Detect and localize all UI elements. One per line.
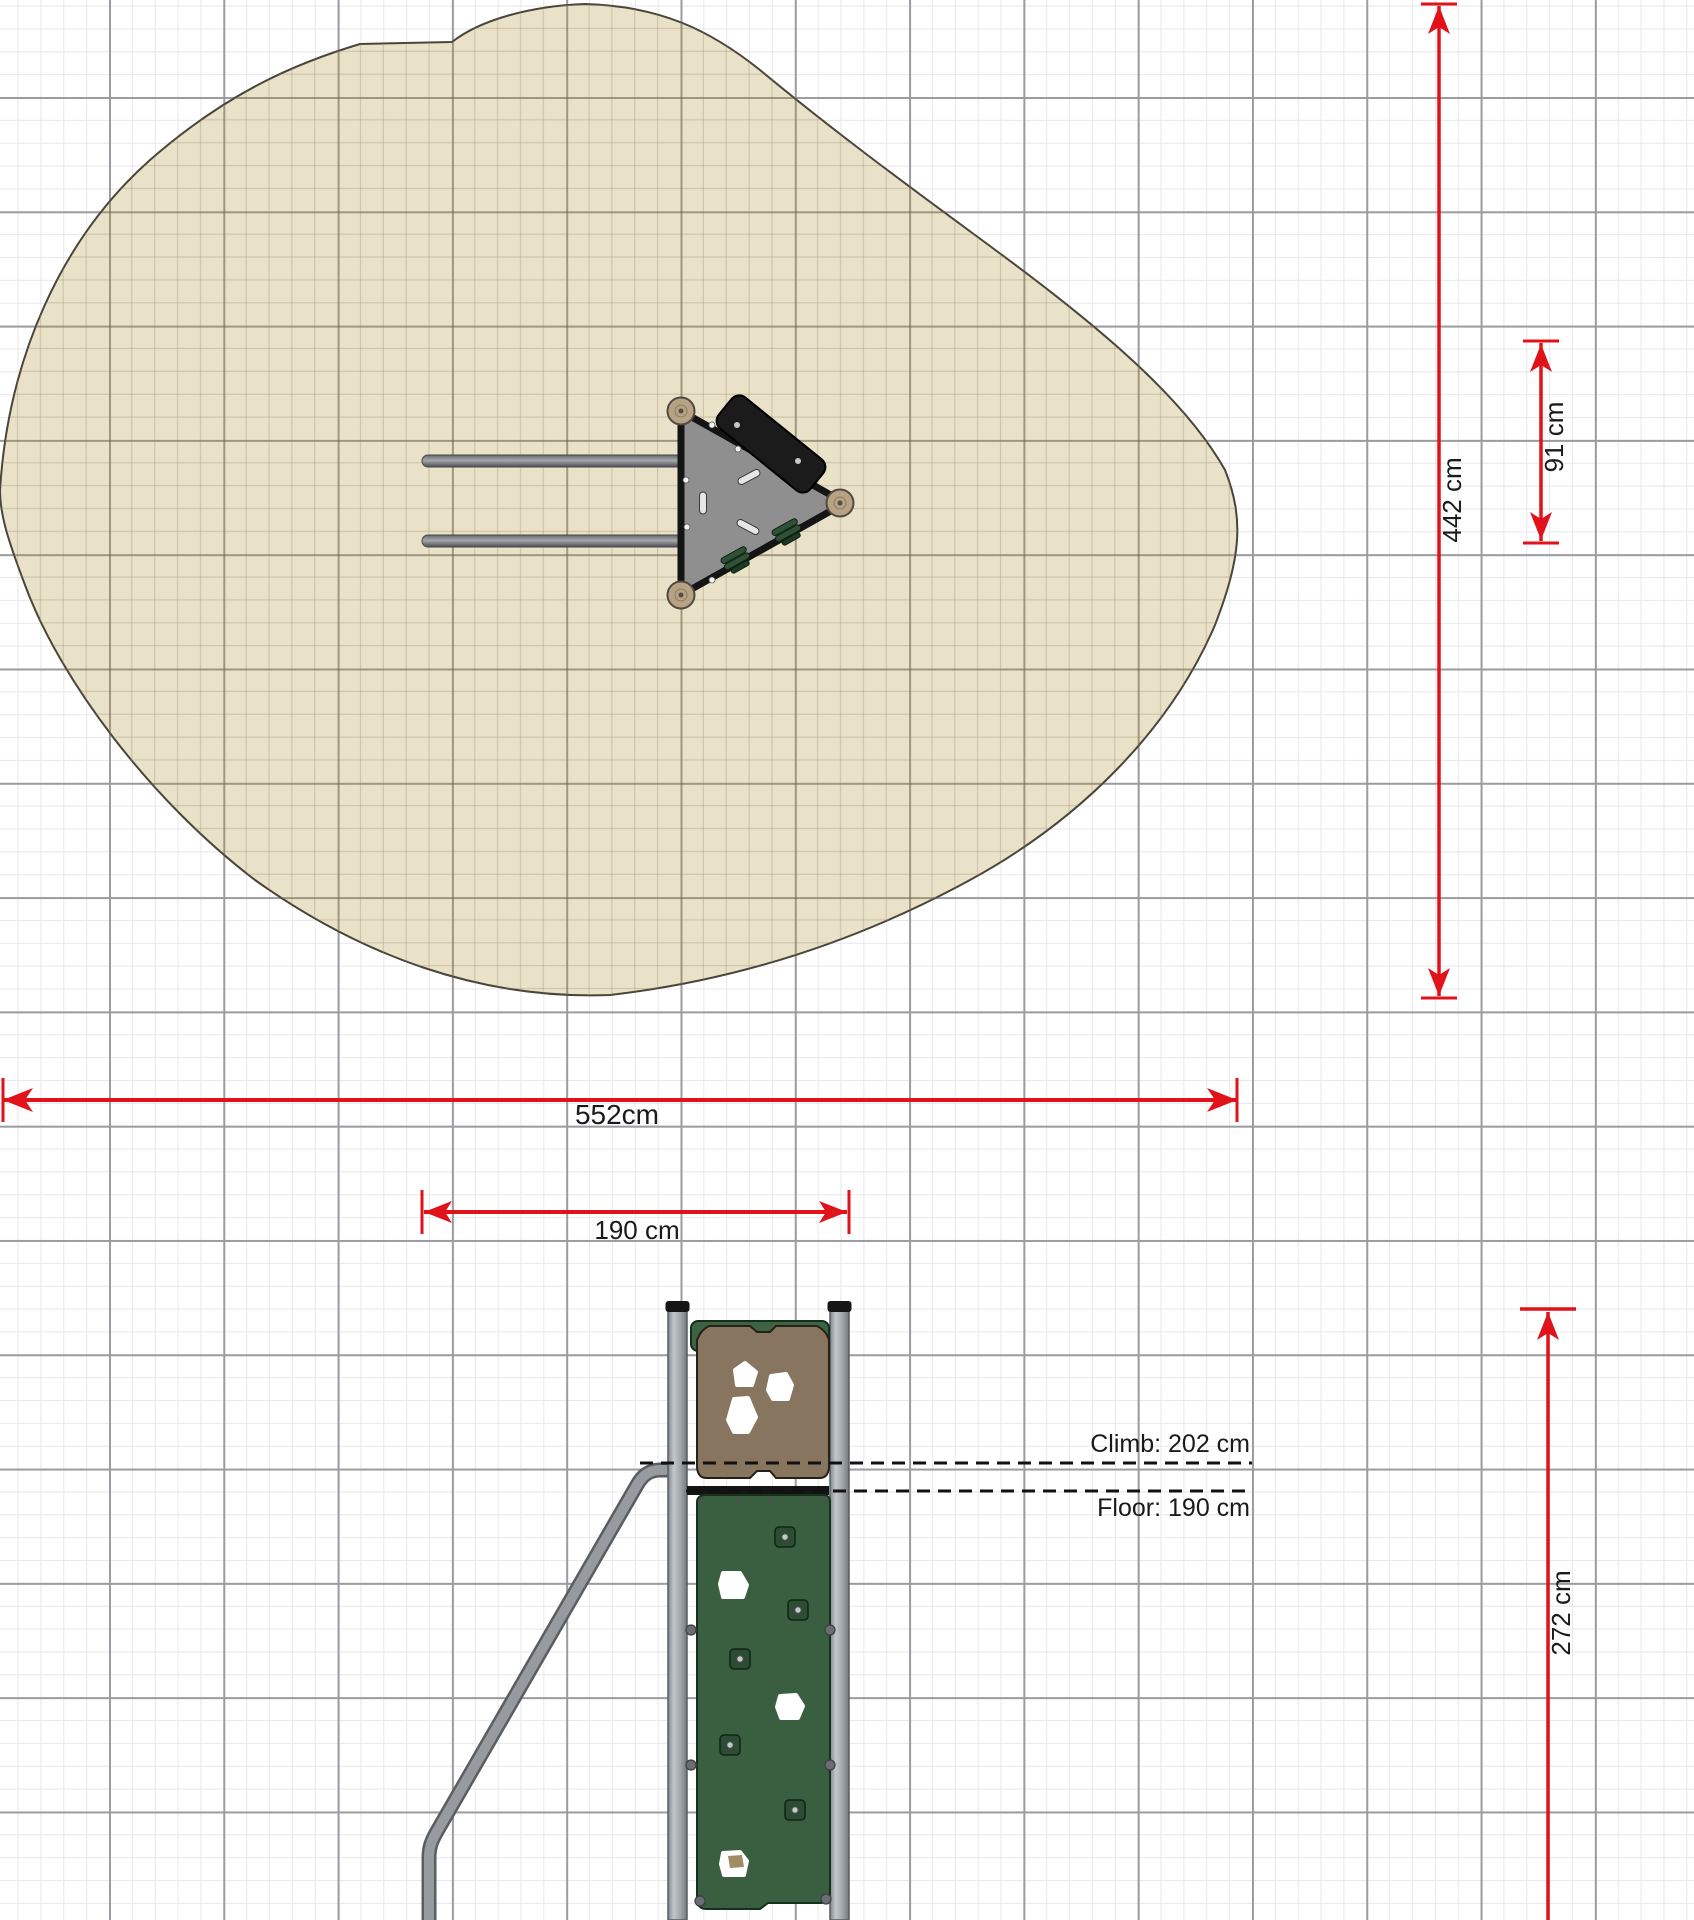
label-equipment-depth: 91 cm — [1539, 402, 1569, 473]
handrail — [429, 1470, 676, 1920]
technical-drawing: 552cm 190 cm 442 cm 91 cm — [0, 0, 1694, 1920]
label-safety-width: 552cm — [575, 1099, 659, 1130]
elevation-post-left — [668, 1307, 687, 1920]
post-cap-left — [666, 1301, 690, 1312]
label-total-height: 272 cm — [1546, 1570, 1576, 1655]
safety-zone-area — [0, 4, 1237, 995]
elevation-view — [429, 1301, 852, 1920]
drawing-canvas: 552cm 190 cm 442 cm 91 cm — [0, 0, 1694, 1920]
plan-bar-top — [422, 455, 698, 467]
plan-panel-bolt-1 — [734, 422, 740, 428]
label-equipment-width: 190 cm — [594, 1215, 679, 1245]
plan-post-apex — [827, 490, 854, 517]
cutout-insert — [728, 1855, 744, 1868]
brown-climb-panel — [697, 1326, 829, 1478]
plan-post-bottom — [668, 582, 695, 609]
plan-post-top — [668, 398, 695, 425]
green-climb-panel — [697, 1495, 830, 1909]
label-climb-height: Climb: 202 cm — [1090, 1430, 1250, 1458]
elevation-post-right — [830, 1307, 849, 1920]
post-cap-right — [828, 1301, 852, 1312]
plan-panel-bolt-2 — [795, 458, 801, 464]
safety-zone-grid — [0, 4, 1237, 995]
label-floor-height: Floor: 190 cm — [1097, 1494, 1250, 1522]
label-safety-height: 442 cm — [1437, 457, 1467, 542]
plan-bar-bottom — [422, 535, 698, 547]
